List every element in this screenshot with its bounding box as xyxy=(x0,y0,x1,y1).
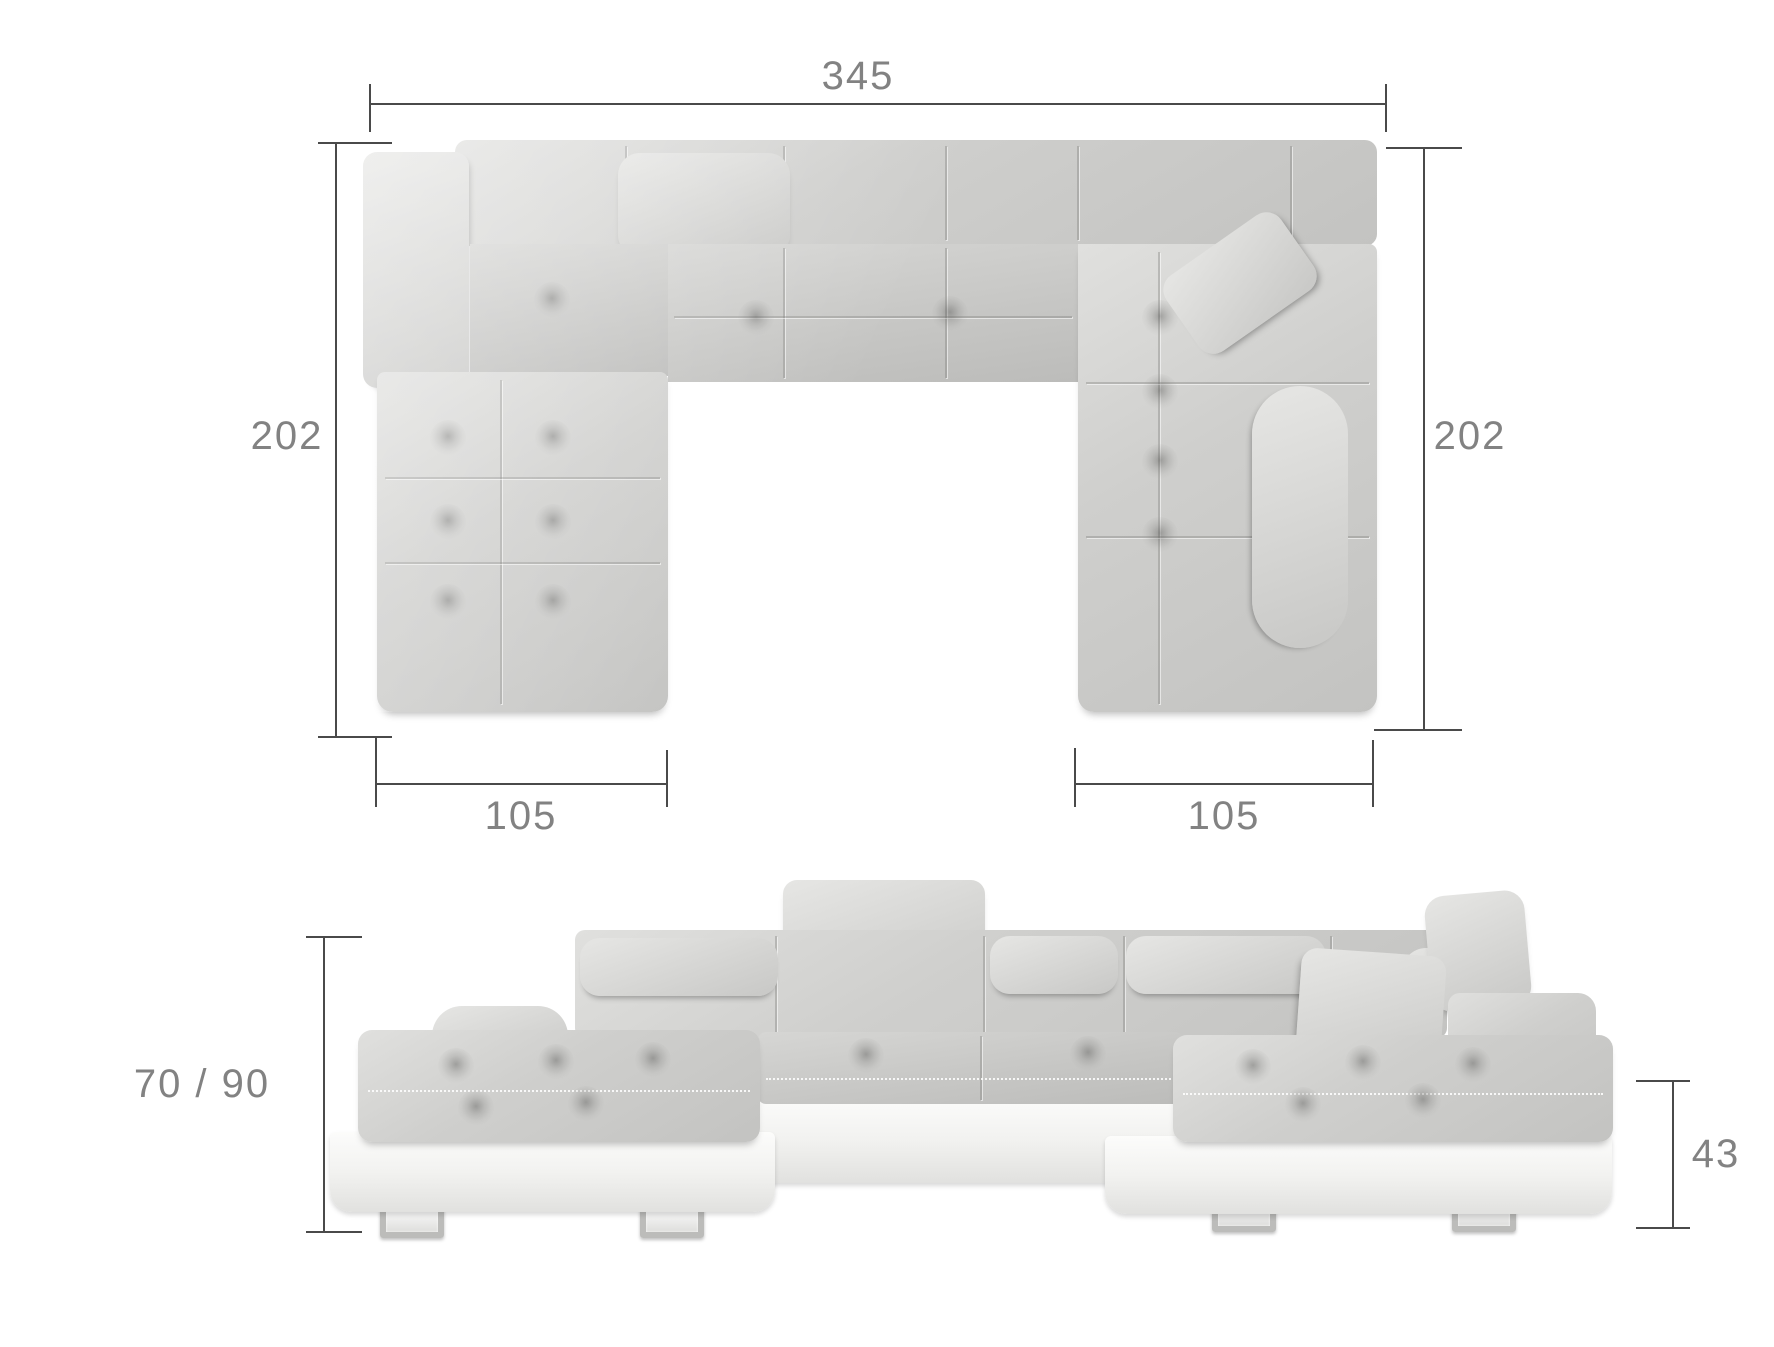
tuft xyxy=(535,504,571,540)
front-base-right xyxy=(1105,1136,1612,1214)
front-base-left xyxy=(330,1132,775,1212)
dim-tick xyxy=(369,84,371,132)
dim-top-depth-right-label: 202 xyxy=(1400,414,1540,458)
dim-tick xyxy=(1636,1080,1690,1082)
tuft xyxy=(1455,1047,1491,1083)
tuft xyxy=(438,1048,474,1084)
dim-top-width-label: 345 xyxy=(758,54,958,98)
stitch-line xyxy=(1183,1093,1603,1095)
seam xyxy=(674,316,1072,318)
dim-front-base-height-label: 43 xyxy=(1666,1132,1766,1176)
seam xyxy=(1123,936,1125,1032)
tuft xyxy=(430,504,466,540)
tuft xyxy=(430,420,466,456)
tuft xyxy=(1405,1083,1441,1119)
stitch-line xyxy=(368,1090,750,1092)
tuft xyxy=(738,300,774,336)
tuft xyxy=(458,1090,494,1126)
dim-top-depth-left-label: 202 xyxy=(217,414,357,458)
tuft xyxy=(535,584,571,620)
top-middle-seat xyxy=(668,244,1078,382)
tuft xyxy=(1235,1049,1271,1085)
tuft xyxy=(1345,1045,1381,1081)
seam xyxy=(1086,382,1369,384)
tuft xyxy=(1142,374,1178,410)
front-left-chaise xyxy=(358,1030,760,1142)
dim-front-height-label: 70 / 90 xyxy=(112,1062,292,1106)
front-right-chaise xyxy=(1173,1035,1613,1142)
dim-tick xyxy=(318,736,392,738)
top-left-armrest xyxy=(363,152,469,388)
dim-top-chaise-right-label: 105 xyxy=(1144,794,1304,838)
dim-top-chaise-left-label: 105 xyxy=(441,794,601,838)
top-left-chaise xyxy=(377,372,668,712)
dim-line xyxy=(1075,783,1373,785)
tuft xyxy=(1142,517,1178,553)
dim-tick xyxy=(1074,748,1076,807)
dim-line xyxy=(323,937,325,1232)
tuft xyxy=(534,282,570,318)
tuft xyxy=(430,584,466,620)
seam xyxy=(783,248,785,378)
front-headrest-pad-mid xyxy=(990,936,1118,994)
dim-tick xyxy=(1372,740,1374,807)
sofa-dimension-diagram: 345 202 202 105 105 xyxy=(0,0,1774,1347)
tuft xyxy=(635,1042,671,1078)
seam xyxy=(980,1036,982,1100)
front-headrest-pad-left xyxy=(580,938,778,996)
dim-tick xyxy=(375,737,377,807)
seam xyxy=(1077,146,1079,240)
dim-line xyxy=(370,103,1386,105)
dim-line xyxy=(376,783,667,785)
dim-tick xyxy=(1374,729,1462,731)
tuft xyxy=(538,1044,574,1080)
dim-tick xyxy=(1636,1227,1690,1229)
tuft xyxy=(1070,1036,1106,1072)
seam xyxy=(385,562,660,564)
tuft xyxy=(932,296,968,332)
top-left-seat xyxy=(470,244,668,376)
top-view: 345 202 202 105 105 xyxy=(0,0,1774,840)
front-headrest-pad-right xyxy=(1126,936,1326,994)
tuft xyxy=(1142,444,1178,480)
seam xyxy=(945,146,947,240)
seam xyxy=(500,380,502,704)
seam xyxy=(1290,146,1292,240)
dim-tick xyxy=(306,1231,362,1233)
dim-tick xyxy=(666,750,668,807)
seam xyxy=(983,936,985,1032)
front-middle-seats xyxy=(758,1032,1183,1104)
seam xyxy=(385,477,660,479)
tuft xyxy=(848,1038,884,1074)
top-headrest-bolster xyxy=(618,153,790,257)
tuft xyxy=(1285,1087,1321,1123)
tuft xyxy=(568,1086,604,1122)
tuft xyxy=(535,420,571,456)
dim-tick xyxy=(1385,84,1387,132)
dim-tick xyxy=(1386,147,1462,149)
stitch-line xyxy=(766,1078,1175,1080)
dim-tick xyxy=(306,936,362,938)
top-right-bolster xyxy=(1252,386,1348,648)
dim-tick xyxy=(318,142,392,144)
